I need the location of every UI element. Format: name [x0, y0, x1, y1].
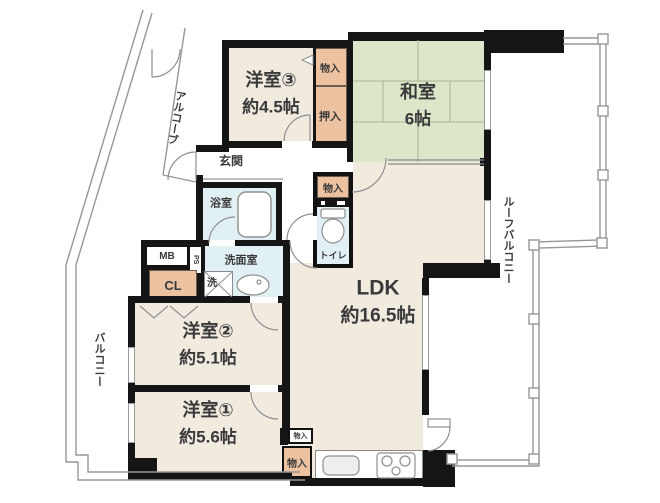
- storage-monoire-hall: 物入: [317, 176, 349, 198]
- door-arc-balcony-door: [428, 427, 450, 451]
- meter-box-label: MB: [159, 251, 175, 262]
- wall: [423, 450, 455, 487]
- label-roof-balcony: ルーフバルコニー: [502, 196, 513, 284]
- floorplan: 物入 押入 MB PS CL 物入 物入 物入: [0, 0, 660, 503]
- wall: [282, 303, 290, 385]
- wall: [135, 385, 250, 392]
- storage-monoire-small: 物入: [288, 428, 313, 444]
- label-washitsu-name: 和室: [400, 83, 436, 101]
- wall: [484, 30, 564, 53]
- wall: [196, 182, 282, 188]
- wall: [347, 40, 353, 162]
- balcony-door-leaf: [428, 419, 450, 427]
- toilet-door-gap: [311, 216, 317, 240]
- label-bathroom: 浴室: [210, 199, 232, 210]
- closet-cl-label: CL: [164, 278, 181, 293]
- label-ldk-size: 約16.5帖: [341, 307, 416, 326]
- label-balcony: バルコニー: [93, 332, 104, 387]
- wall: [290, 478, 425, 486]
- wall: [348, 32, 486, 41]
- wall: [278, 385, 290, 392]
- label-washitsu-size: 6帖: [405, 111, 431, 128]
- label-yoshitsu2-name: 洋室②: [182, 322, 233, 340]
- window: [484, 70, 491, 130]
- label-yoshitsu3-name: 洋室③: [245, 71, 296, 89]
- wall: [196, 240, 209, 246]
- label-ldk-name: LDK: [356, 278, 399, 299]
- window: [484, 200, 491, 260]
- wall: [278, 296, 290, 303]
- storage-monoire-top: 物入: [313, 48, 347, 86]
- wall: [313, 48, 316, 141]
- label-genkan: 玄関: [219, 155, 243, 167]
- wall: [128, 383, 135, 403]
- storage-oshiire-label: 押入: [319, 108, 341, 124]
- label-yoshitsu2-size: 約5.1帖: [179, 350, 237, 367]
- storage-monoire-lower-label: 物入: [287, 455, 307, 470]
- wall: [422, 370, 429, 415]
- storage-monoire-small-label: 物入: [294, 431, 308, 441]
- wall: [229, 141, 282, 148]
- wall: [128, 303, 135, 347]
- toilet-shelf-dot: [321, 201, 325, 205]
- pipe-shaft-label: PS: [192, 255, 199, 264]
- window: [128, 403, 135, 443]
- wall: [222, 40, 352, 48]
- wall: [283, 243, 290, 303]
- label-yoshitsu3-size: 約4.5帖: [242, 99, 300, 116]
- storage-monoire-top-label: 物入: [320, 60, 340, 75]
- label-yoshitsu1-name: 洋室①: [182, 401, 233, 419]
- meter-box: MB: [146, 246, 188, 266]
- label-alcove: アルコーブ: [165, 89, 185, 145]
- kitchen-counter: [315, 450, 423, 481]
- door-arc-entrance: [168, 152, 196, 180]
- storage-monoire-hall-label: 物入: [323, 180, 343, 195]
- label-washer: 洗: [207, 279, 217, 289]
- wall: [422, 278, 429, 295]
- toilet-shelf-dot2: [337, 201, 345, 205]
- wall: [128, 296, 250, 303]
- label-toilet: トイレ: [319, 252, 346, 261]
- wall: [312, 141, 352, 148]
- storage-duct: [280, 428, 288, 445]
- room-yoshitsu3: [229, 48, 313, 141]
- storage-oshiire: 押入: [313, 86, 347, 145]
- wall: [282, 392, 290, 428]
- window: [128, 347, 135, 383]
- room-bathroom: [203, 188, 276, 240]
- wall: [196, 188, 203, 243]
- wall: [135, 472, 292, 480]
- room-ldk-upper: [353, 162, 484, 263]
- label-yoshitsu1-size: 約5.6帖: [179, 429, 237, 446]
- label-washroom: 洗面室: [225, 256, 258, 267]
- window: [422, 295, 429, 370]
- wall: [222, 40, 229, 145]
- wall: [276, 188, 282, 243]
- wall: [196, 145, 229, 152]
- wall: [484, 53, 491, 70]
- room-yoshitsu2: [135, 303, 282, 385]
- wall: [235, 240, 290, 246]
- door-arc-toilet: [287, 214, 313, 240]
- wall: [480, 158, 488, 166]
- door-arc-alcove: [152, 49, 180, 77]
- wall: [484, 260, 491, 266]
